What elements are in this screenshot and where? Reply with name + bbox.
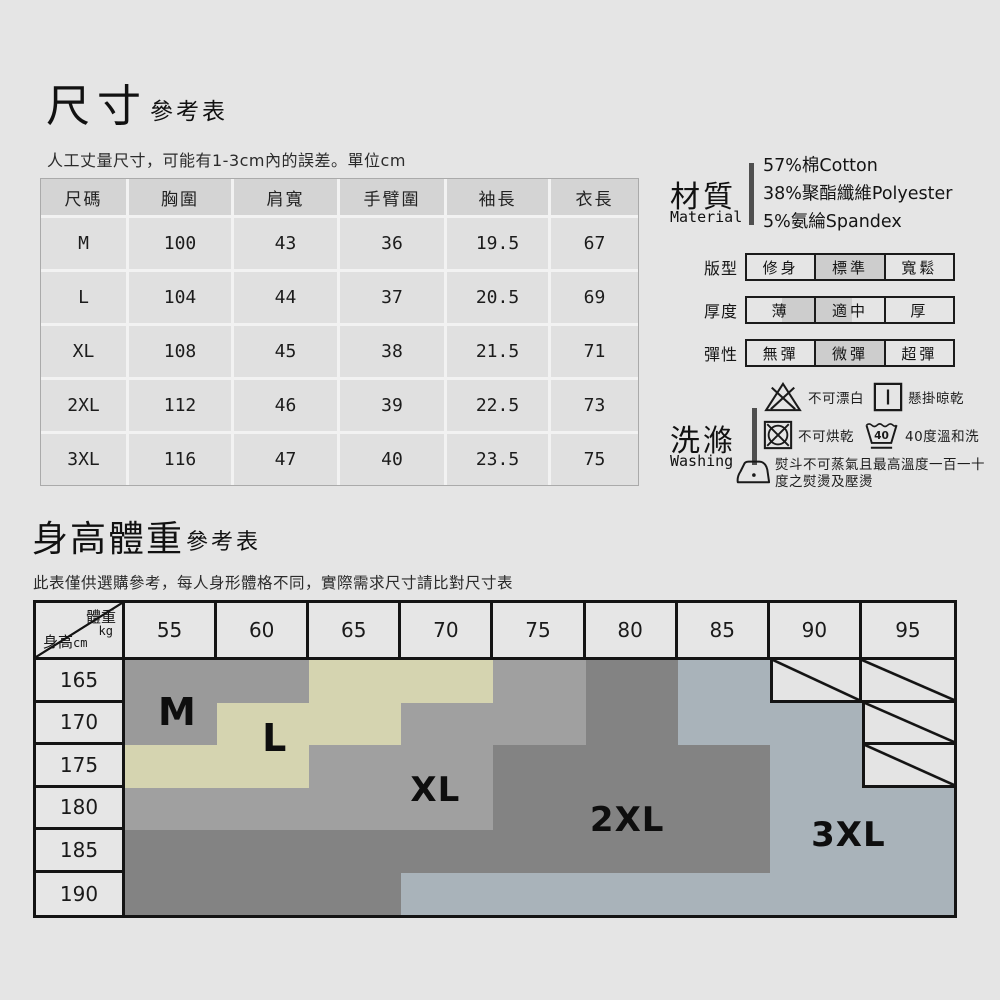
attribute-label: 版型 (658, 255, 745, 279)
size-code-cell: XL (41, 326, 129, 380)
measurement-cell: 39 (340, 380, 447, 434)
measurement-cell: 71 (551, 326, 638, 380)
size-region-cell (217, 788, 309, 831)
washing-label-en: Washing (670, 452, 733, 470)
weight-header-cell: 70 (401, 603, 493, 660)
size-table-header-cell: 尺碼 (41, 179, 129, 218)
size-table-header-row: 尺碼胸圍肩寬手臂圍袖長衣長 (41, 179, 638, 218)
size-code-cell: 3XL (41, 434, 129, 485)
wash-40-icon: 40 (863, 419, 900, 450)
attribute-rows: 版型修身標準寬鬆厚度薄適中厚彈性無彈微彈超彈 (658, 253, 968, 382)
weight-unit-label: kg (99, 624, 113, 638)
washing-row: 不可漂白懸掛晾乾 (736, 382, 1000, 412)
size-table-header-cell: 肩寬 (234, 179, 340, 218)
size-table-row: L104443720.569 (41, 272, 638, 326)
size-region-cell (309, 873, 401, 916)
weight-header-cell: 85 (678, 603, 770, 660)
weight-header-cell: 55 (125, 603, 217, 660)
attribute-option: 標準 (814, 255, 883, 279)
size-region-cell (493, 788, 585, 831)
measurement-cell: 23.5 (447, 434, 551, 485)
attribute-option: 適中 (814, 298, 883, 322)
washing-item: 不可漂白 (763, 382, 864, 412)
measurement-cell: 75 (551, 434, 638, 485)
size-region-cell (309, 788, 401, 831)
na-hatched-cell (770, 660, 862, 703)
measurement-cell: 46 (234, 380, 340, 434)
measurement-cell: 112 (129, 380, 234, 434)
hw-corner-cell: 體重kg身高cm (36, 603, 125, 660)
attribute-label: 厚度 (658, 298, 745, 322)
height-header-cell: 180 (36, 788, 125, 831)
measurement-cell: 21.5 (447, 326, 551, 380)
size-region-cell (401, 830, 493, 873)
size-region-cell (862, 873, 954, 916)
size-region-cell (678, 660, 770, 703)
size-table-header-cell: 手臂圍 (340, 179, 447, 218)
size-region-cell (493, 703, 585, 746)
size-region-cell (309, 703, 401, 746)
size-table-row: 2XL112463922.573 (41, 380, 638, 434)
attribute-option: 薄 (747, 298, 814, 322)
size-code-cell: M (41, 218, 129, 272)
material-label-en: Material (670, 208, 742, 226)
size-region-cell (770, 873, 862, 916)
size-region-cell (125, 830, 217, 873)
size-table-row: M100433619.567 (41, 218, 638, 272)
size-region-label: L (262, 716, 287, 760)
washing-instruction: 不可漂白 (808, 387, 864, 407)
hang-dry-icon (873, 382, 903, 412)
size-region-cell (678, 873, 770, 916)
weight-header-cell: 65 (309, 603, 401, 660)
size-code-cell: L (41, 272, 129, 326)
measurement-cell: 67 (551, 218, 638, 272)
size-region-cell (493, 873, 585, 916)
measurement-cell: 38 (340, 326, 447, 380)
measurement-cell: 22.5 (447, 380, 551, 434)
na-hatched-cell (862, 703, 954, 746)
attribute-options-box: 薄適中厚 (745, 296, 955, 324)
attribute-options-box: 無彈微彈超彈 (745, 339, 955, 367)
measurement-cell: 116 (129, 434, 234, 485)
washing-item: 4040度溫和洗 (863, 419, 979, 450)
attribute-label: 彈性 (658, 341, 745, 365)
size-region-cell (678, 745, 770, 788)
measurement-cell: 47 (234, 434, 340, 485)
weight-header-cell: 80 (586, 603, 678, 660)
height-unit-label: cm (73, 636, 87, 650)
hw-section-title: 身高體重 參考表 (32, 521, 261, 559)
no-tumble-dry-icon (763, 420, 793, 450)
attribute-row: 厚度薄適中厚 (658, 296, 968, 324)
size-table-row: 3XL116474023.575 (41, 434, 638, 485)
size-region-cell (678, 830, 770, 873)
size-region-cell (493, 660, 585, 703)
size-region-cell (678, 788, 770, 831)
attribute-options-box: 修身標準寬鬆 (745, 253, 955, 281)
size-region-cell (125, 788, 217, 831)
size-table-row: XL108453821.571 (41, 326, 638, 380)
size-region-label: 2XL (590, 800, 665, 840)
weight-header-cell: 60 (217, 603, 309, 660)
no-bleach-icon (763, 382, 803, 412)
washing-row: 熨斗不可蒸氣且最高溫度一百一十度之熨燙及壓燙 (736, 457, 1000, 491)
hw-note: 此表僅供選購參考，每人身形體格不同，實際需求尺寸請比對尺寸表 (33, 571, 513, 593)
size-table-header-cell: 胸圍 (129, 179, 234, 218)
size-section-title: 尺寸 參考表 (46, 84, 228, 130)
measurement-cell: 19.5 (447, 218, 551, 272)
size-region-cell (401, 660, 493, 703)
measurement-cell: 108 (129, 326, 234, 380)
hw-title-suffix: 參考表 (186, 524, 261, 556)
size-region-cell (217, 660, 309, 703)
measurement-cell: 37 (340, 272, 447, 326)
attribute-option: 無彈 (747, 341, 814, 365)
size-region-cell (586, 660, 678, 703)
height-header-cell: 185 (36, 830, 125, 873)
attribute-option: 微彈 (814, 341, 883, 365)
height-header-cell: 190 (36, 873, 125, 916)
washing-item: 懸掛晾乾 (873, 382, 964, 412)
attribute-option: 厚 (884, 298, 953, 322)
hw-grid: 體重kg身高cm55606570758085909516517017518018… (36, 603, 954, 915)
size-region-label: XL (410, 770, 460, 810)
washing-instruction: 不可烘乾 (798, 425, 854, 445)
washing-item: 不可烘乾 (763, 420, 854, 450)
size-region-label: 3XL (811, 815, 886, 855)
size-region-cell (770, 745, 862, 788)
attribute-option: 修身 (747, 255, 814, 279)
measurement-cell: 104 (129, 272, 234, 326)
height-header-cell: 170 (36, 703, 125, 746)
size-region-cell (493, 745, 585, 788)
weight-header-cell: 90 (770, 603, 862, 660)
size-table: 尺碼胸圍肩寬手臂圍袖長衣長M100433619.567L104443720.56… (40, 178, 639, 486)
na-hatched-cell (862, 745, 954, 788)
size-region-cell (309, 830, 401, 873)
size-code-cell: 2XL (41, 380, 129, 434)
measurement-cell: 69 (551, 272, 638, 326)
material-line: 38%聚酯纖維Polyester (763, 180, 952, 208)
size-region-cell (770, 703, 862, 746)
size-region-cell (493, 830, 585, 873)
svg-text:40: 40 (874, 429, 889, 442)
washing-row: 不可烘乾4040度溫和洗 (736, 419, 1000, 450)
material-composition-list: 57%棉Cotton38%聚酯纖維Polyester5%氨綸Spandex (763, 152, 952, 236)
size-measure-note: 人工丈量尺寸，可能有1-3cm內的誤差。單位cm (47, 147, 406, 171)
size-region-cell (401, 873, 493, 916)
size-region-cell (217, 830, 309, 873)
size-region-cell (125, 873, 217, 916)
size-region-cell (125, 745, 217, 788)
size-region-cell (586, 703, 678, 746)
measurement-cell: 44 (234, 272, 340, 326)
weight-header-cell: 75 (493, 603, 585, 660)
height-header-cell: 175 (36, 745, 125, 788)
material-line: 5%氨綸Spandex (763, 208, 952, 236)
attribute-option: 寬鬆 (884, 255, 953, 279)
size-region-cell (586, 873, 678, 916)
size-title-suffix: 參考表 (150, 92, 228, 126)
attribute-row: 彈性無彈微彈超彈 (658, 339, 968, 367)
size-region-label: M (158, 690, 197, 734)
hw-matrix: 體重kg身高cm55606570758085909516517017518018… (33, 600, 957, 918)
washing-instruction: 熨斗不可蒸氣且最高溫度一百一十度之熨燙及壓燙 (775, 457, 993, 491)
measurement-cell: 43 (234, 218, 340, 272)
size-region-cell (309, 745, 401, 788)
measurement-cell: 40 (340, 434, 447, 485)
size-chart-page: 尺寸 參考表 人工丈量尺寸，可能有1-3cm內的誤差。單位cm 尺碼胸圍肩寬手臂… (0, 0, 1000, 1000)
size-title-main: 尺寸 (46, 84, 148, 130)
height-header-cell: 165 (36, 660, 125, 703)
height-axis-label: 身高cm (43, 631, 87, 652)
washing-instruction: 40度溫和洗 (905, 425, 979, 445)
washing-items: 不可漂白懸掛晾乾不可烘乾4040度溫和洗熨斗不可蒸氣且最高溫度一百一十度之熨燙及… (736, 382, 1000, 498)
iron-icon (736, 457, 770, 486)
size-region-cell (217, 873, 309, 916)
weight-header-cell: 95 (862, 603, 954, 660)
size-table-header-cell: 袖長 (447, 179, 551, 218)
size-region-cell (586, 745, 678, 788)
measurement-cell: 73 (551, 380, 638, 434)
attribute-option: 超彈 (884, 341, 953, 365)
na-hatched-cell (862, 660, 954, 703)
measurement-cell: 45 (234, 326, 340, 380)
size-region-cell (678, 703, 770, 746)
attribute-row: 版型修身標準寬鬆 (658, 253, 968, 281)
washing-instruction: 懸掛晾乾 (908, 387, 964, 407)
size-region-cell (401, 703, 493, 746)
measurement-cell: 20.5 (447, 272, 551, 326)
material-divider (749, 163, 754, 225)
hw-title-main: 身高體重 (32, 521, 184, 559)
measurement-cell: 100 (129, 218, 234, 272)
washing-item: 熨斗不可蒸氣且最高溫度一百一十度之熨燙及壓燙 (736, 457, 993, 491)
measurement-cell: 36 (340, 218, 447, 272)
material-line: 57%棉Cotton (763, 152, 952, 180)
size-table-header-cell: 衣長 (551, 179, 638, 218)
size-region-cell (309, 660, 401, 703)
